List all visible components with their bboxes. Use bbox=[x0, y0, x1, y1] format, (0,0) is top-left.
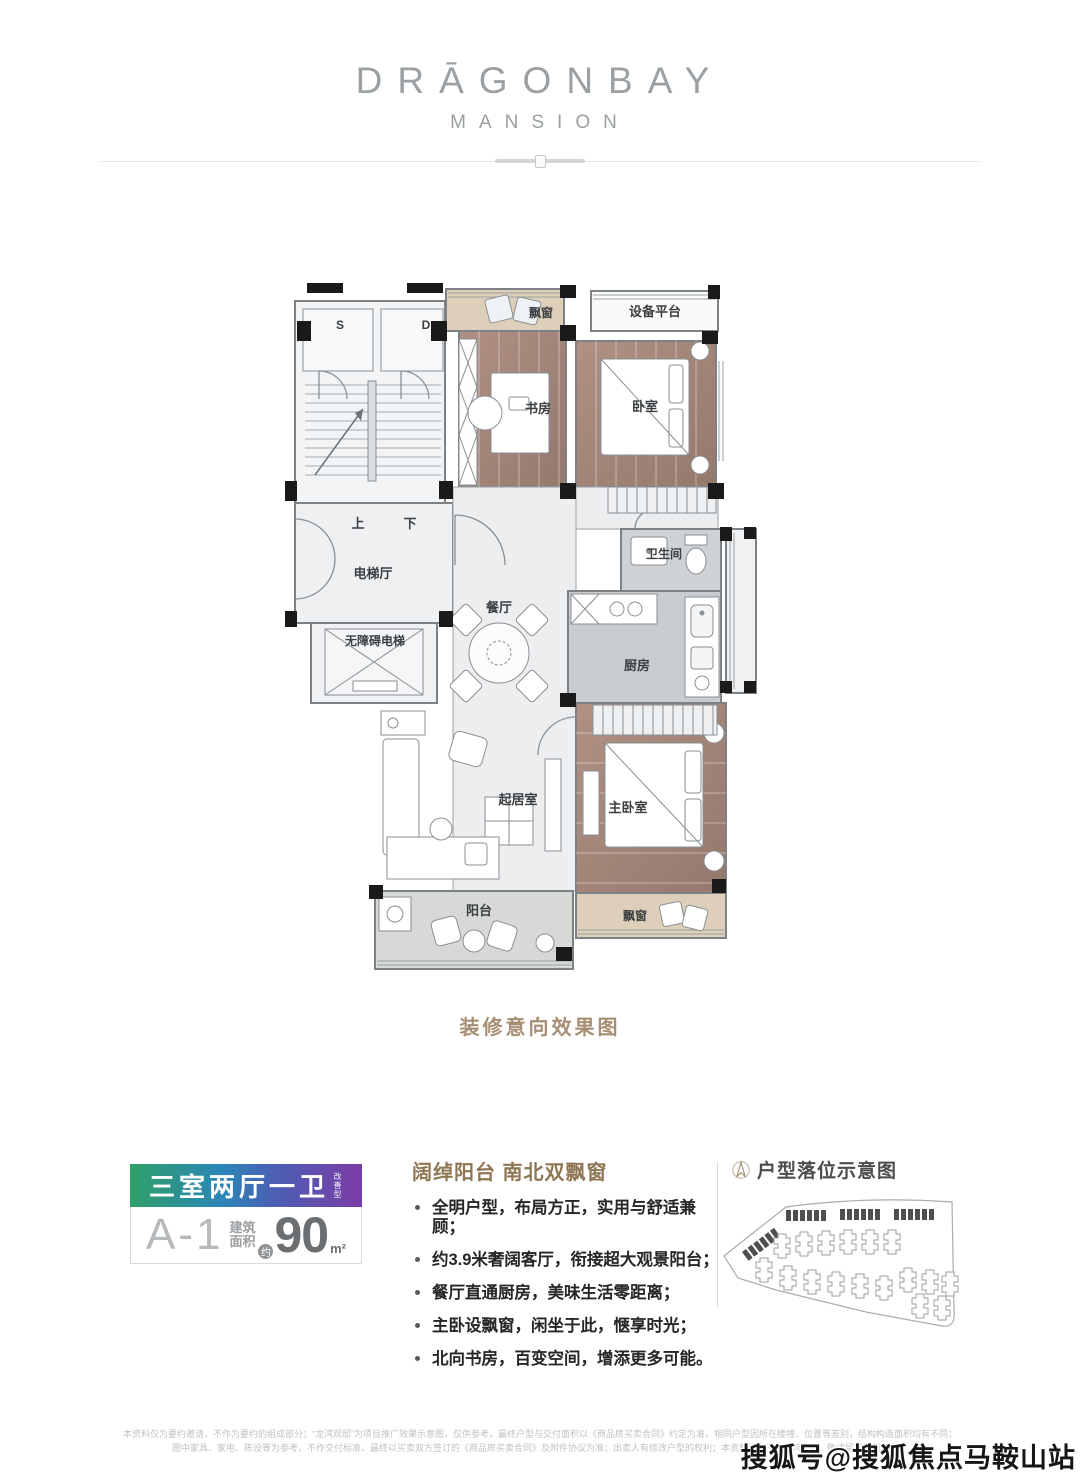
watermark: 搜狐号@搜狐焦点马鞍山站 bbox=[741, 1436, 1076, 1475]
site-building-dark bbox=[894, 1209, 934, 1220]
bullet-dot bbox=[415, 1290, 420, 1295]
site-plan bbox=[716, 1190, 970, 1350]
label-elevator-hall: 电梯厅 bbox=[353, 566, 392, 581]
feature-item: 全明户型，布局方正，实用与舒适兼顾； bbox=[412, 1199, 724, 1237]
bullet-dot bbox=[415, 1356, 420, 1361]
unit-rooms-label: 三室两厅一卫 bbox=[149, 1167, 329, 1204]
label-kitchen: 厨房 bbox=[624, 658, 650, 673]
unit-rooms-banner: 三室两厅一卫 改善型 bbox=[130, 1164, 362, 1207]
unit-area-unit: m² bbox=[330, 1241, 346, 1256]
bullet-dot bbox=[415, 1323, 420, 1328]
label-stair-s: S bbox=[336, 318, 344, 332]
features-block: 阔绰阳台 南北双飘窗 全明户型，布局方正，实用与舒适兼顾； 约3.9米奢阔客厅，… bbox=[412, 1156, 724, 1369]
location-map-title: 户型落位示意图 bbox=[757, 1156, 897, 1183]
feature-item: 主卧设飘窗，闲坐于此，惬享时光； bbox=[412, 1317, 724, 1336]
label-balcony: 阳台 bbox=[466, 903, 492, 918]
site-building bbox=[804, 1270, 820, 1294]
features-title: 阔绰阳台 南北双飘窗 bbox=[412, 1156, 724, 1185]
site-building bbox=[934, 1296, 950, 1320]
site-building bbox=[922, 1270, 938, 1294]
label-stair-d: D bbox=[422, 318, 431, 332]
label-study: 书房 bbox=[525, 401, 551, 416]
label-bedroom: 卧室 bbox=[632, 399, 658, 414]
compass-icon bbox=[731, 1160, 751, 1180]
site-building-dark bbox=[840, 1209, 880, 1220]
approx-badge: 约 bbox=[258, 1244, 273, 1259]
feature-item: 餐厅直通厨房，美味生活零距离； bbox=[412, 1284, 724, 1303]
site-building bbox=[862, 1230, 878, 1254]
label-master-bedroom: 主卧室 bbox=[608, 800, 647, 815]
site-building bbox=[828, 1272, 844, 1296]
feature-text: 餐厅直通厨房，美味生活零距离； bbox=[432, 1284, 680, 1302]
site-building bbox=[840, 1230, 856, 1254]
label-equipment-platform: 设备平台 bbox=[629, 304, 681, 319]
bullet-dot bbox=[415, 1205, 420, 1210]
site-building bbox=[876, 1276, 892, 1300]
unit-rooms-tag: 改善型 bbox=[332, 1172, 343, 1199]
site-building bbox=[912, 1294, 928, 1318]
unit-area-value: 90 bbox=[274, 1210, 328, 1260]
brand-logo: DRĀGONBAY bbox=[0, 60, 1080, 102]
feature-item: 北向书房，百变空间，增添更多可能。 bbox=[412, 1350, 724, 1369]
bullet-dot bbox=[415, 1257, 420, 1262]
feature-text: 约3.9米奢阔客厅，衔接超大观景阳台； bbox=[432, 1251, 719, 1269]
site-building bbox=[900, 1268, 916, 1292]
brand-subtitle: MANSION bbox=[0, 112, 1080, 134]
location-map-block: 户型落位示意图 bbox=[731, 1156, 976, 1183]
feature-item: 约3.9米奢阔客厅，衔接超大观景阳台； bbox=[412, 1251, 724, 1270]
site-building bbox=[852, 1274, 868, 1298]
floorplan-caption: 装修意向效果图 bbox=[0, 1011, 1080, 1040]
unit-area-label: 建筑 面积 bbox=[229, 1221, 255, 1250]
site-building bbox=[818, 1231, 834, 1255]
label-bay-window-bottom: 飘窗 bbox=[623, 908, 647, 923]
site-building bbox=[756, 1258, 772, 1282]
floor-plan: S D 上 下 电梯厅 无障碍电梯 飘窗 设备平台 书房 卧室 卫生间 餐厅 厨… bbox=[283, 281, 771, 978]
site-building bbox=[780, 1266, 796, 1290]
site-building-dark bbox=[786, 1210, 826, 1221]
label-dining: 餐厅 bbox=[485, 600, 512, 615]
label-down: 下 bbox=[403, 516, 416, 531]
site-building bbox=[796, 1232, 812, 1256]
unit-area-row: A-1 建筑 面积 约 90 m² bbox=[130, 1207, 362, 1264]
feature-text: 主卧设飘窗，闲坐于此，惬享时光； bbox=[432, 1317, 696, 1335]
label-accessible-elevator: 无障碍电梯 bbox=[344, 633, 405, 648]
site-building bbox=[942, 1272, 958, 1296]
unit-card: 三室两厅一卫 改善型 A-1 建筑 面积 约 90 m² bbox=[130, 1164, 362, 1264]
unit-code: A-1 bbox=[146, 1213, 223, 1257]
label-up: 上 bbox=[351, 516, 364, 531]
site-building bbox=[774, 1234, 790, 1258]
label-bathroom: 卫生间 bbox=[646, 546, 682, 561]
bedroom-wardrobe bbox=[608, 487, 716, 513]
master-wardrobe bbox=[593, 705, 717, 735]
room-elevator-hall bbox=[295, 503, 453, 623]
label-bay-window-top: 飘窗 bbox=[529, 305, 553, 320]
header-divider-ornament bbox=[535, 155, 546, 168]
site-building bbox=[884, 1230, 900, 1254]
label-living: 起居室 bbox=[497, 792, 537, 807]
feature-text: 全明户型，布局方正，实用与舒适兼顾； bbox=[432, 1199, 696, 1236]
unit-area-label-line1: 建筑 bbox=[229, 1221, 255, 1235]
feature-text: 北向书房，百变空间，增添更多可能。 bbox=[432, 1350, 713, 1368]
unit-area-label-line2: 面积 bbox=[229, 1235, 255, 1249]
